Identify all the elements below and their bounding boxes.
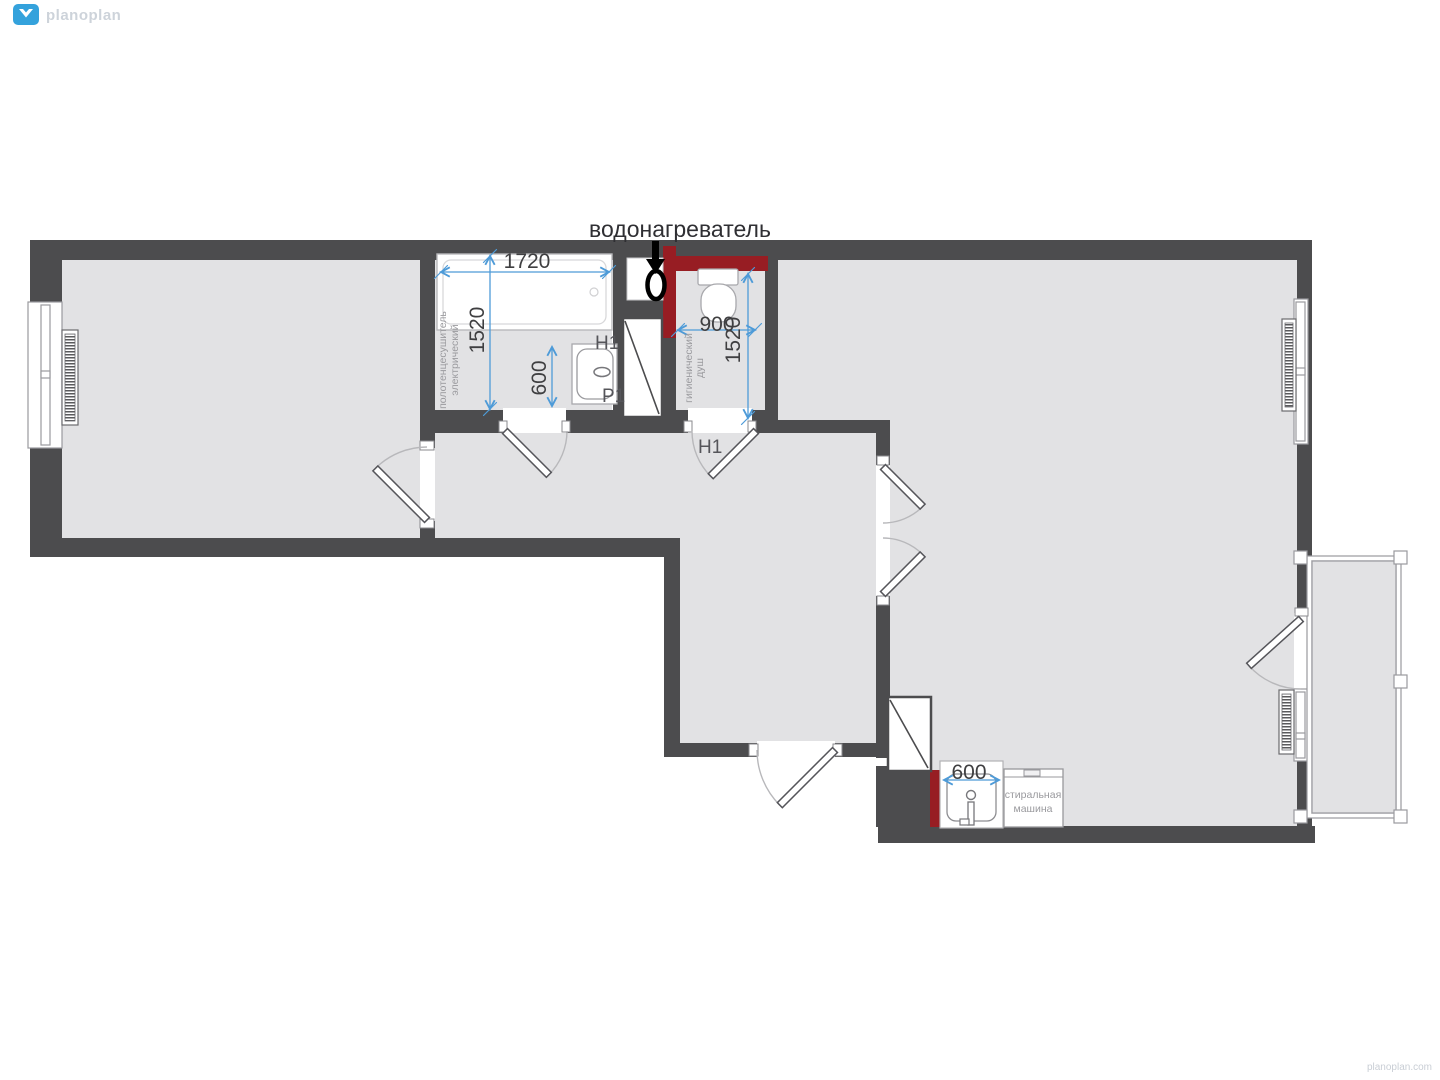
double-door-opening [876, 465, 890, 596]
dim-label: 600 [528, 360, 551, 395]
wall-segment [664, 545, 680, 757]
bathroom-sink-faucet [594, 368, 610, 377]
floor-plan: стиральная машина [0, 0, 1440, 1080]
dim-label: 1520 [466, 307, 489, 354]
wall-segment [876, 766, 932, 827]
kitchen-sink-faucet-hole [967, 791, 976, 800]
washing-machine-label-1: стиральная [1005, 789, 1062, 801]
hall-floor [678, 545, 878, 747]
livingroom-radiator-bottom [1279, 690, 1294, 754]
livingroom-window-bottom [1294, 689, 1308, 761]
bedroom-window [28, 302, 62, 448]
wc-door-code: H1 [698, 437, 722, 458]
bath-sink-code-bottom: P1 [602, 386, 625, 407]
livingroom-radiator-top [1282, 319, 1296, 411]
wall-segment [663, 333, 676, 422]
dim-label: 1520 [722, 317, 745, 364]
site-watermark: planoplan.com [1367, 1062, 1432, 1073]
balcony-floor [1307, 556, 1401, 818]
bathroom-shaft [623, 318, 662, 417]
dim-label: 600 [951, 761, 986, 784]
balcony [1294, 551, 1407, 823]
livingroom-floor-upper [778, 258, 1297, 422]
bedroom-radiator [62, 330, 78, 425]
planoplan-logo-text: planoplan [46, 7, 121, 24]
bedroom-floor [62, 258, 420, 542]
bathroom-door-opening [503, 408, 566, 433]
washing-machine-lid [1024, 770, 1040, 776]
floor-plan-canvas: стиральная машина [0, 0, 1440, 1080]
towel-rail-label-1: полотенцесушитель [437, 311, 449, 409]
wall-segment [778, 420, 890, 433]
wall-segment [613, 300, 665, 318]
planoplan-logo-icon [13, 4, 39, 25]
dim-label: 1720 [504, 250, 551, 273]
hall-shaft [888, 697, 931, 771]
towel-rail-label-2: электрический [449, 324, 461, 395]
hygienic-shower-label-2: душ [694, 358, 706, 378]
wall-segment [664, 743, 759, 757]
corridor-floor [433, 431, 878, 545]
bath-sink-code-top: H1 [595, 333, 619, 354]
wc-door-opening [688, 408, 752, 433]
washing-machine: стиральная машина [1004, 769, 1063, 827]
washing-machine-label-2: машина [1014, 803, 1053, 815]
water-heater-label: водонагреватель [589, 216, 771, 242]
toilet-tank [698, 269, 738, 285]
wall-segment [30, 538, 680, 557]
